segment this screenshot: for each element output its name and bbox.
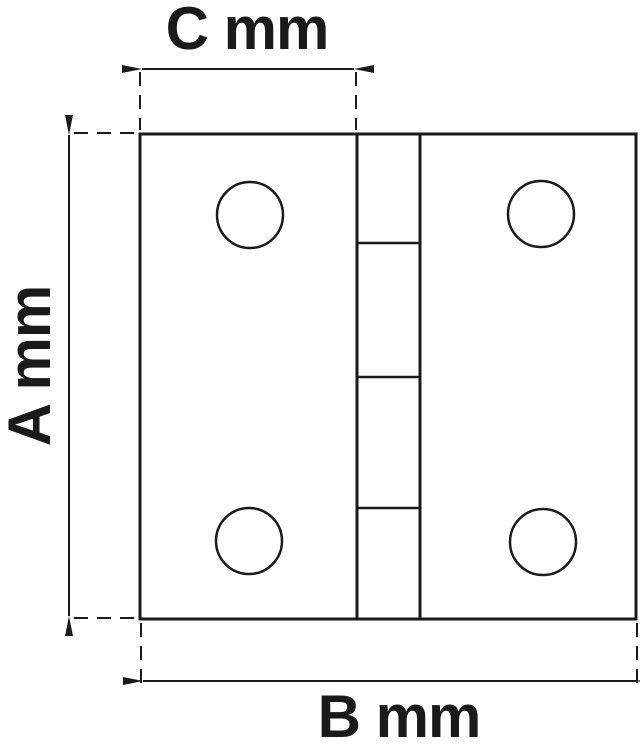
dimension-label-a: A mm xyxy=(0,286,63,446)
dimension-label-b: B mm xyxy=(318,683,481,749)
dimension-label-c: C mm xyxy=(166,0,329,62)
drawing-background xyxy=(0,0,640,749)
hinge-drawing-svg: C mm A mm B mm xyxy=(0,0,640,749)
hinge-dimension-diagram: C mm A mm B mm xyxy=(0,0,640,749)
